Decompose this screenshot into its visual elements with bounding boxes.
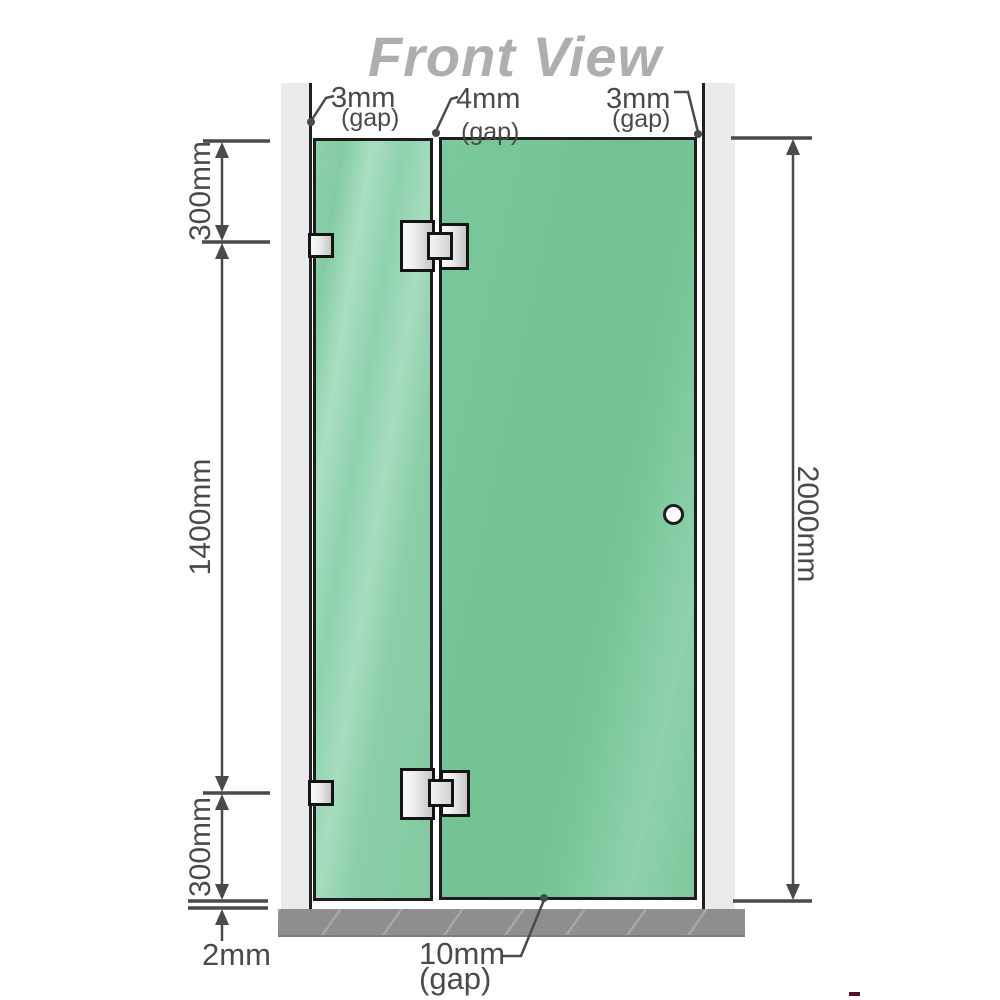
dim-segment-top: 300mm [184, 141, 218, 241]
leader-dots [307, 118, 702, 902]
dimension-arrowheads [215, 139, 800, 925]
gap-bottom-unit: (gap) [419, 961, 491, 997]
gap-top-left-unit: (gap) [341, 104, 399, 133]
gap-top-middle-value: 4mm [456, 83, 520, 116]
dimension-lines [0, 0, 1000, 1000]
dim-floor-clearance: 2mm [202, 937, 271, 973]
gap-top-right-unit: (gap) [612, 105, 670, 134]
dim-segment-middle: 1400mm [184, 459, 218, 576]
gap-top-middle-unit: (gap) [461, 118, 519, 147]
leader-lines [311, 92, 698, 956]
dimension-shafts [222, 151, 793, 941]
extension-ticks [188, 138, 812, 908]
dim-segment-bottom: 300mm [184, 797, 218, 897]
dim-total-height: 2000mm [790, 466, 824, 583]
front-view-diagram: Front View [0, 0, 1000, 1000]
